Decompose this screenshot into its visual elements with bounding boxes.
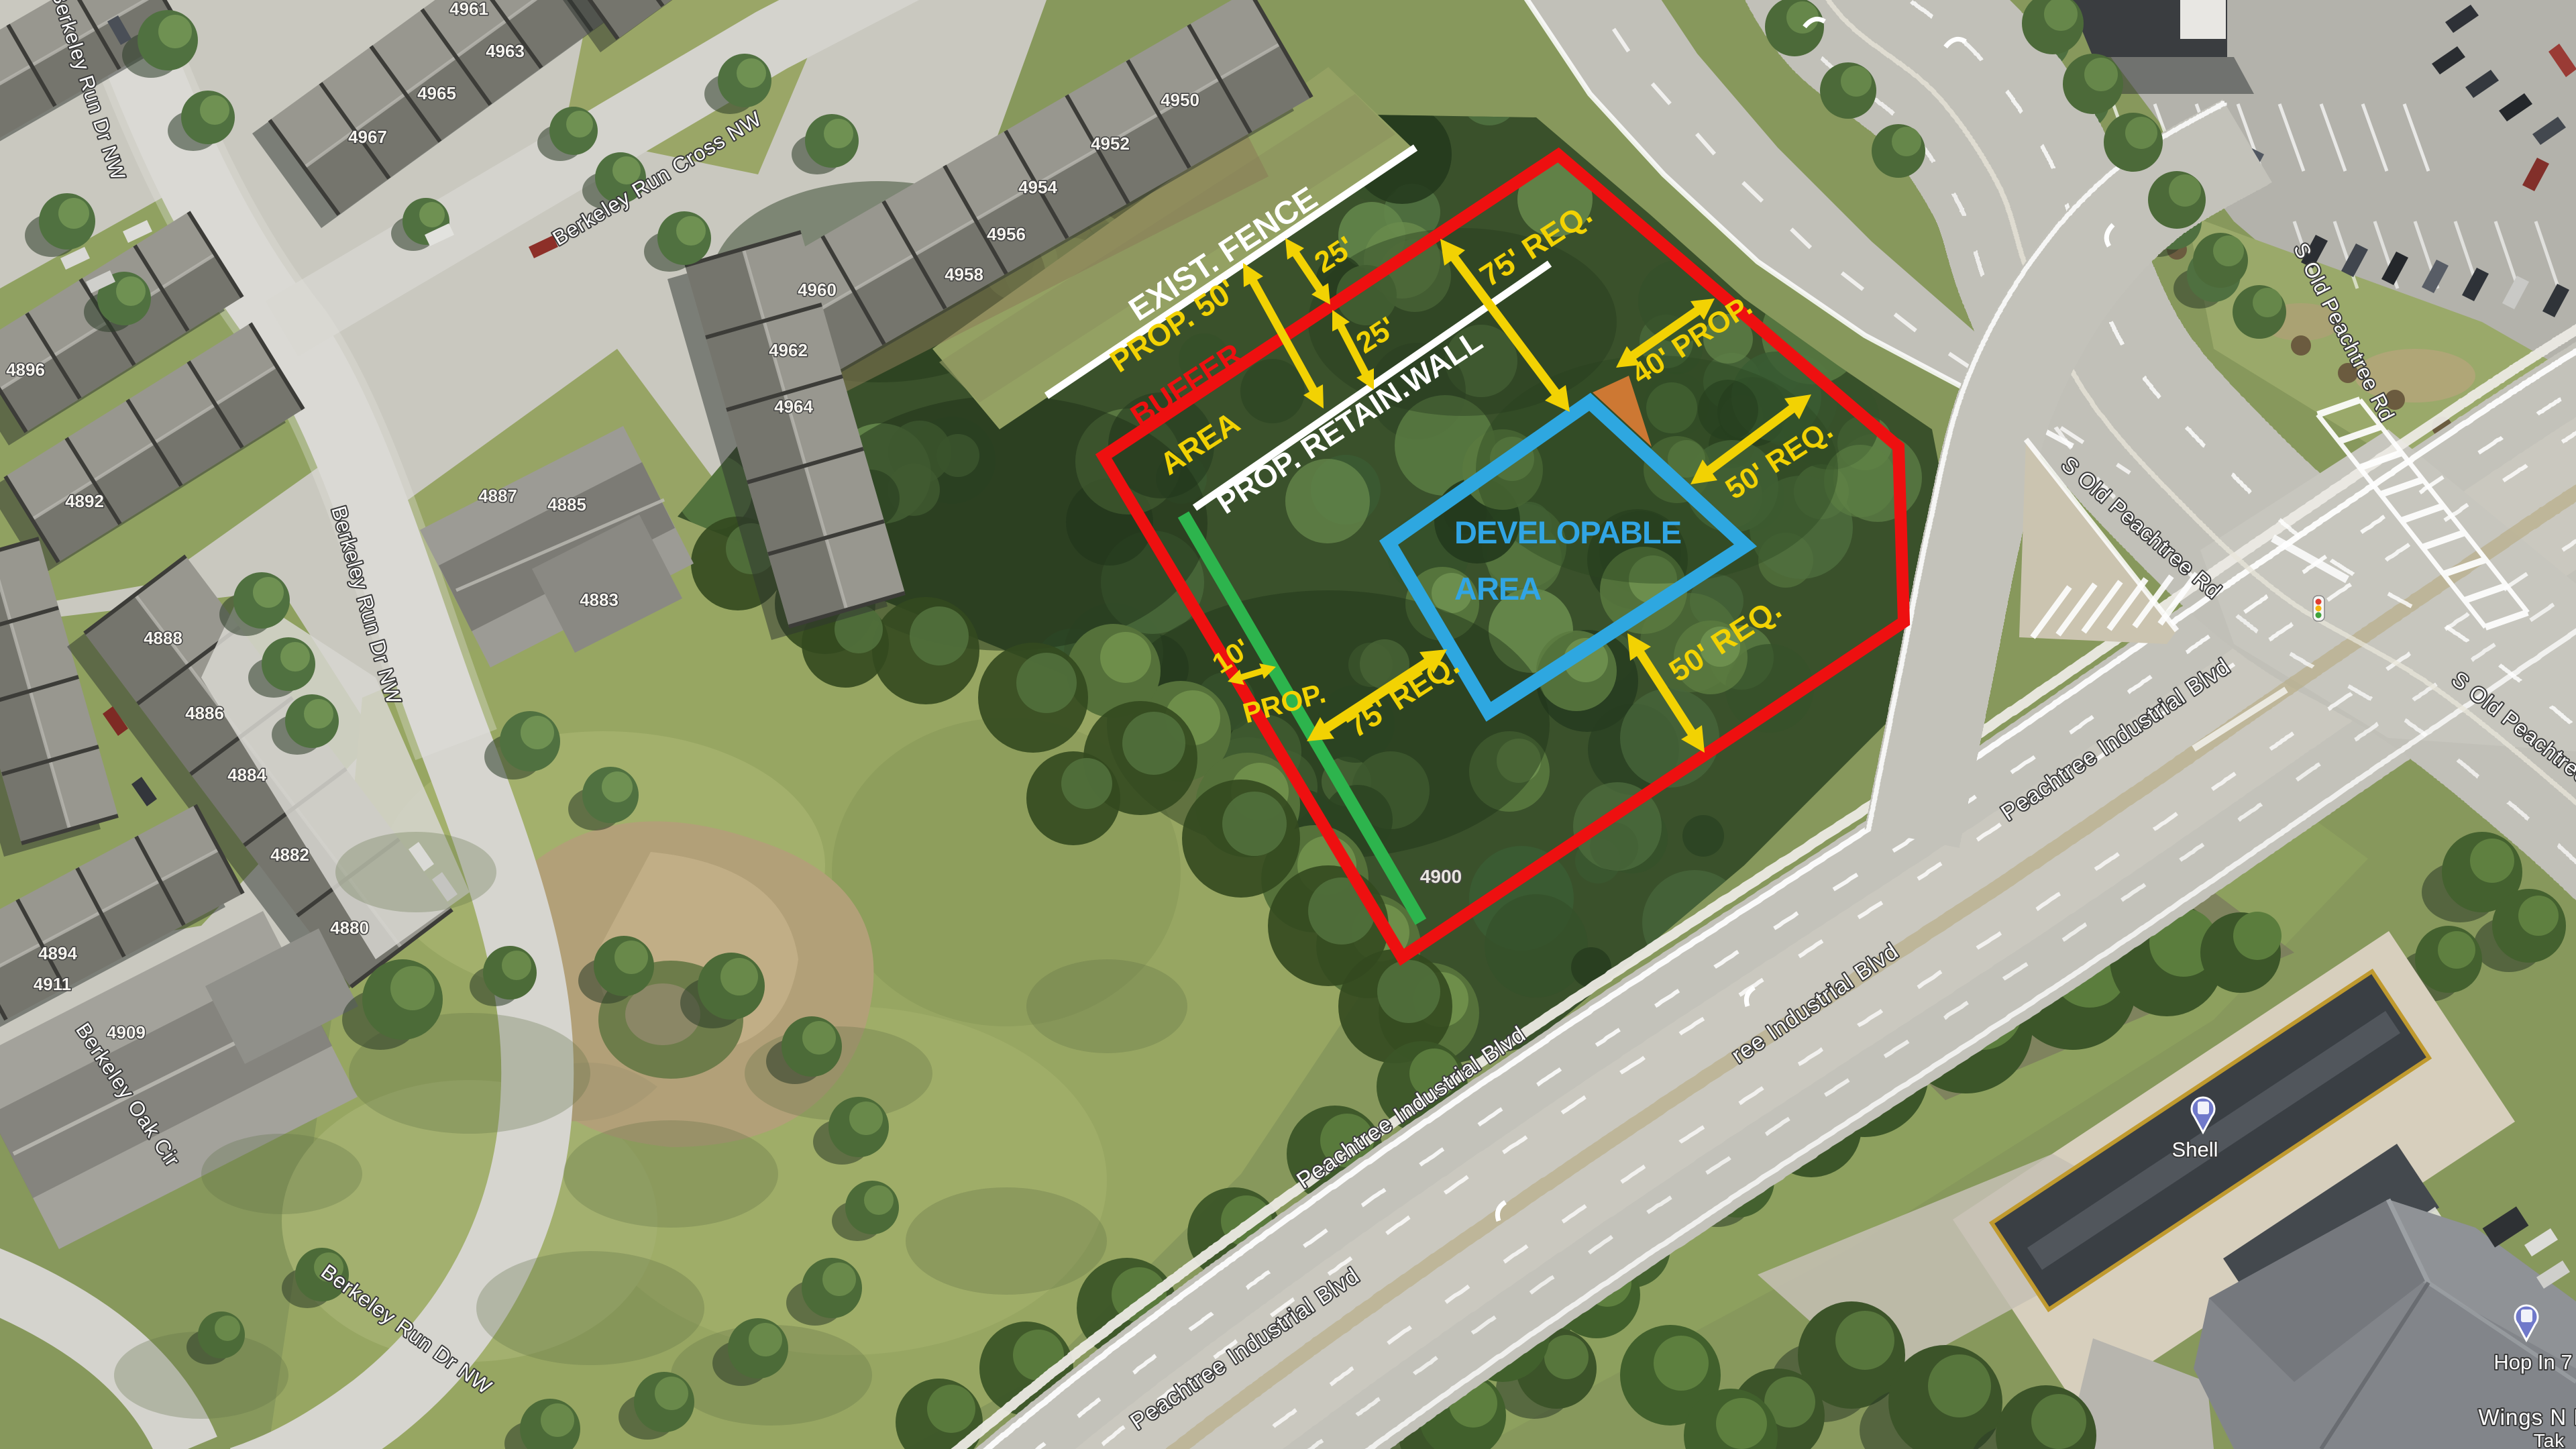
svg-text:4962: 4962 — [769, 340, 808, 360]
svg-text:Tak: Tak — [2534, 1430, 2565, 1449]
svg-text:Hop In 7: Hop In 7 — [2493, 1350, 2572, 1374]
svg-text:4954: 4954 — [1018, 177, 1057, 197]
svg-text:Shell: Shell — [2172, 1138, 2218, 1161]
svg-text:4961: 4961 — [449, 0, 488, 19]
svg-text:4884: 4884 — [227, 765, 266, 785]
svg-text:4956: 4956 — [987, 224, 1026, 244]
svg-text:4892: 4892 — [65, 491, 104, 511]
svg-text:4950: 4950 — [1161, 90, 1199, 110]
svg-text:4896: 4896 — [6, 360, 45, 380]
svg-text:4958: 4958 — [945, 264, 983, 284]
svg-text:4888: 4888 — [144, 628, 182, 648]
svg-text:4894: 4894 — [38, 943, 77, 963]
svg-text:4887: 4887 — [478, 486, 517, 506]
svg-text:4965: 4965 — [417, 83, 456, 103]
svg-text:4909: 4909 — [107, 1022, 146, 1042]
svg-text:4882: 4882 — [270, 845, 309, 865]
svg-text:Wings N F: Wings N F — [2478, 1405, 2576, 1430]
svg-text:4964: 4964 — [774, 396, 813, 417]
svg-text:4880: 4880 — [330, 918, 369, 938]
svg-text:4911: 4911 — [34, 974, 71, 994]
svg-text:4883: 4883 — [580, 590, 619, 610]
svg-text:4900: 4900 — [1420, 866, 1462, 887]
svg-text:4960: 4960 — [798, 280, 837, 300]
svg-text:4963: 4963 — [486, 41, 525, 61]
svg-text:4886: 4886 — [185, 703, 224, 723]
svg-text:4952: 4952 — [1091, 133, 1130, 154]
svg-text:4885: 4885 — [547, 494, 586, 515]
svg-text:AREA: AREA — [1454, 571, 1541, 606]
svg-text:4967: 4967 — [348, 127, 387, 147]
svg-text:DEVELOPABLE: DEVELOPABLE — [1454, 515, 1681, 550]
